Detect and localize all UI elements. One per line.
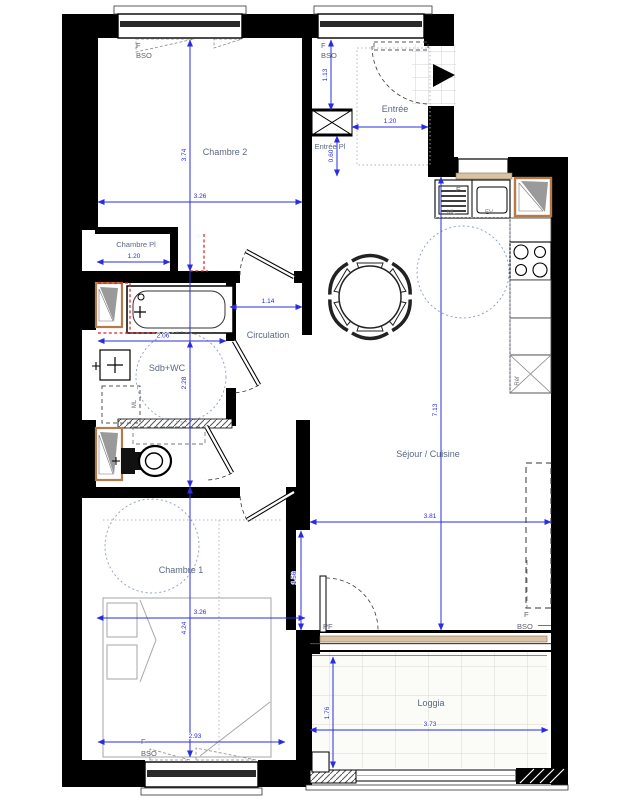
window-sill [314, 6, 432, 14]
dining-set [325, 256, 415, 339]
wall-segment [258, 760, 312, 787]
dim-sejour-h: 7.13 [432, 403, 439, 416]
kitchen-counter-column [510, 218, 551, 393]
wall-segment [95, 227, 178, 234]
wall-segment [62, 760, 145, 787]
window-sill [141, 788, 262, 795]
dim-loggia-h: 1.76 [324, 706, 331, 719]
wall-segment [424, 14, 454, 46]
wall-segment [294, 271, 302, 283]
facade-line [310, 630, 551, 633]
door-swing-arc [233, 385, 259, 393]
counter-cell [510, 218, 551, 242]
dim-chambre-pl-w: 1.20 [128, 253, 141, 260]
bathtub [127, 286, 233, 333]
wall-segment [62, 14, 82, 787]
door-label-pf: PF [323, 622, 333, 631]
door-sdb [233, 341, 259, 393]
floor-plan: 3.74 2.28 4.24 3.26 1.20 1.13 1.20 0.60 … [0, 0, 638, 800]
door-swing-arc [240, 494, 247, 520]
wall-segment [428, 106, 454, 177]
wall-segment [82, 283, 96, 330]
dim-loggia-w: 3.73 [424, 721, 437, 728]
facade-line [310, 643, 551, 644]
appliance-label-ml: ML [447, 210, 456, 216]
door-swing-arc [240, 251, 246, 277]
room-label-entree-pl: Entrée Pl [315, 142, 346, 151]
room-label-chambre-pl: Chambre Pl [116, 240, 156, 249]
appliance-label-ev: EV [485, 210, 493, 216]
toilet-tank [121, 448, 135, 474]
window-label-f: F [321, 41, 326, 50]
bed-headboard [140, 600, 156, 682]
dim-chambre1-w: 3.26 [194, 609, 207, 616]
duct-kitchen [515, 178, 551, 216]
loggia-post [312, 752, 329, 772]
wardrobe-provision [526, 463, 551, 608]
window-label-f: F [524, 610, 529, 619]
window-frame [458, 159, 508, 174]
window-chambre2 [114, 6, 246, 52]
window-label-bso: BSO [517, 622, 533, 631]
door-swing-arc [326, 578, 378, 630]
wall-segment [312, 14, 318, 38]
window-label-f: F [141, 737, 146, 746]
wall-segment [551, 157, 568, 787]
dim-chambre1-h: 4.24 [181, 621, 188, 634]
dim-sejour-w: 3.81 [424, 513, 437, 520]
window-glazing [320, 21, 422, 27]
door-leaf [234, 341, 259, 385]
bso-shutter-mark [196, 748, 256, 760]
window-label-f: F [136, 41, 141, 50]
door-chambre2 [240, 251, 294, 277]
wall-segment [82, 14, 98, 230]
window-glazing [147, 770, 256, 777]
appliance-label-ref: Réf [515, 376, 521, 386]
window-cuisine [456, 159, 512, 179]
window-glazing [120, 21, 240, 27]
dim-entree-pl-h: 0.60 [328, 149, 335, 162]
room-label-circulation: Circulation [247, 330, 290, 340]
wall-segment [302, 14, 312, 335]
loggia-sill [306, 785, 568, 790]
appliance-label-ml: ML [132, 399, 138, 408]
window-label-f: F [456, 185, 461, 194]
bso-shutter-mark [214, 39, 242, 48]
toilet-bowl [139, 446, 171, 476]
room-label-sdb-wc: Sdb+WC [149, 363, 186, 373]
room-label-sejour-cuisine: Séjour / Cuisine [396, 449, 460, 459]
facade-line [312, 655, 547, 656]
room-label-chambre1: Chambre 1 [159, 565, 204, 575]
washbasin-tap [92, 362, 100, 370]
wall-segment [242, 14, 312, 38]
wc-cistern-zone [133, 427, 205, 444]
dim-chambre2-h: 3.74 [181, 148, 188, 161]
room-label-entree: Entrée [382, 104, 409, 114]
dim-chambre2-w: 3.26 [194, 193, 207, 200]
door-wc [205, 426, 232, 480]
dim-circulation-w: 1.14 [262, 298, 275, 305]
counter-cell [510, 318, 551, 355]
floor-plan-drawing: 3.74 2.28 4.24 3.26 1.20 1.13 1.20 0.60 … [0, 0, 638, 800]
door-swing-arc [205, 473, 232, 480]
duct-left-lower [96, 428, 122, 480]
window-label-bso: BSO [321, 51, 337, 60]
window-sill [320, 636, 547, 642]
wc-fixtures [112, 427, 205, 476]
clearance-circle [105, 499, 199, 593]
dim-sdb-h: 2.28 [181, 376, 188, 389]
dim-entree-h: 1.13 [322, 68, 329, 81]
door-chambre1 [240, 492, 294, 520]
dim-chambre1-w2: 2.93 [189, 733, 202, 740]
window-sill [456, 173, 512, 179]
wall-segment [82, 487, 240, 498]
counter-edge-dotted [435, 218, 510, 394]
wall-segment [82, 420, 96, 487]
furniture-zone-dotted [103, 520, 282, 757]
dim-sejour-e: 1.56 [291, 571, 298, 584]
facade-line [310, 650, 551, 652]
room-label-loggia: Loggia [417, 698, 444, 708]
wall-segment [78, 14, 118, 38]
loggia-tiled-floor [312, 652, 547, 768]
clearance-circle [417, 226, 509, 318]
window-sill [114, 6, 246, 14]
duct-left-upper [96, 283, 122, 327]
door-leaf [206, 426, 232, 473]
room-label-chambre2: Chambre 2 [203, 147, 248, 157]
door-leaf [246, 251, 294, 277]
bed-pillow [107, 645, 137, 679]
window-label-bso: BSO [141, 749, 157, 758]
dim-entree-w: 1.20 [384, 118, 397, 125]
wall-segment [170, 227, 178, 278]
counter-cell [510, 280, 551, 318]
window-entree [314, 6, 432, 38]
wall-segment [82, 271, 240, 283]
wall-segment [296, 420, 310, 487]
dim-sdb-w: 2.06 [157, 333, 170, 340]
chambre1-furniture [103, 499, 282, 757]
window-label-bso: BSO [136, 51, 152, 60]
dining-table [339, 266, 401, 328]
bed-pillow [107, 603, 137, 637]
bed-fold [200, 702, 270, 756]
